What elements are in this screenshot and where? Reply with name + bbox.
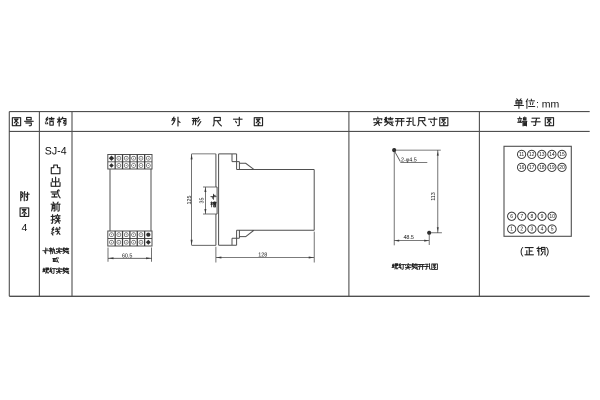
- svg-text:2: 2: [520, 227, 523, 233]
- svg-text:3: 3: [531, 227, 534, 233]
- svg-text:1: 1: [510, 227, 513, 233]
- svg-text:(: (: [520, 246, 524, 258]
- svg-text:5: 5: [551, 227, 554, 233]
- svg-text:4: 4: [541, 227, 544, 233]
- svg-text:19: 19: [549, 165, 555, 171]
- svg-text:16: 16: [519, 165, 525, 171]
- svg-text:2-φ4.5: 2-φ4.5: [401, 158, 417, 164]
- svg-text:mm: mm: [542, 99, 560, 111]
- svg-text::: :: [536, 99, 539, 110]
- svg-text:9: 9: [541, 214, 544, 220]
- svg-text:13: 13: [539, 152, 545, 158]
- svg-text:): ): [546, 246, 550, 258]
- svg-text:14: 14: [549, 152, 555, 158]
- svg-text:18: 18: [539, 165, 545, 171]
- svg-text:60.5: 60.5: [122, 253, 133, 259]
- svg-text:12: 12: [529, 152, 535, 158]
- svg-text:48.5: 48.5: [403, 235, 414, 241]
- svg-text:11: 11: [519, 152, 524, 158]
- svg-text:15: 15: [559, 152, 565, 158]
- svg-text:10: 10: [549, 214, 555, 220]
- svg-text:17: 17: [529, 165, 535, 171]
- svg-text:6: 6: [510, 214, 513, 220]
- svg-text:128: 128: [258, 253, 267, 259]
- svg-text:SJ-4: SJ-4: [45, 145, 67, 157]
- svg-text:4: 4: [21, 222, 27, 234]
- svg-text:8: 8: [531, 214, 534, 220]
- svg-text:35: 35: [199, 198, 205, 204]
- svg-text:113: 113: [431, 192, 437, 201]
- svg-text:7: 7: [520, 214, 523, 220]
- svg-text:125: 125: [187, 196, 193, 205]
- svg-text:20: 20: [559, 165, 565, 171]
